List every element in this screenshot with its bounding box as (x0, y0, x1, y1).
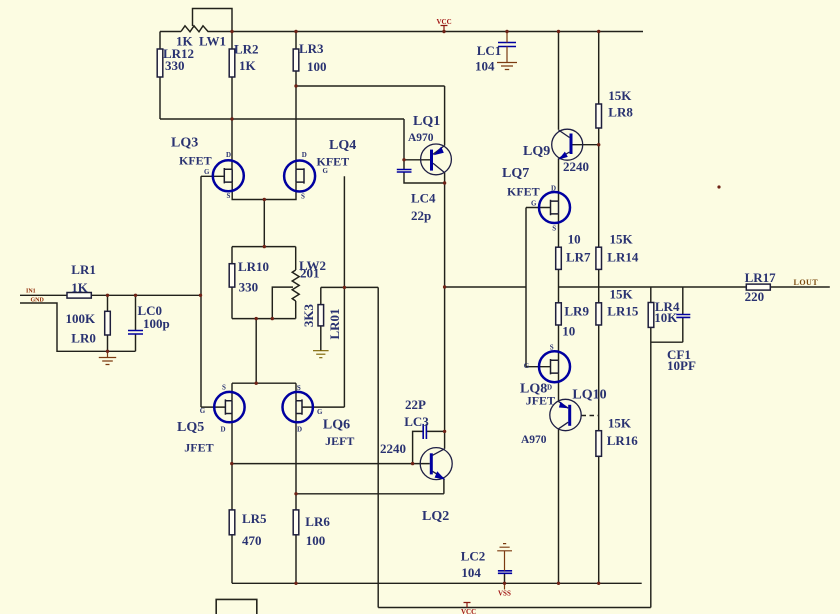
svg-text:LR2: LR2 (234, 42, 259, 57)
svg-text:LR10: LR10 (238, 259, 269, 274)
svg-text:G: G (317, 408, 323, 416)
svg-text:LQ3: LQ3 (171, 136, 198, 151)
svg-text:VCC: VCC (437, 18, 452, 26)
svg-text:LW1: LW1 (199, 34, 226, 49)
svg-text:KFET: KFET (179, 154, 212, 168)
svg-text:VSS: VSS (498, 590, 511, 598)
svg-text:LQ10: LQ10 (572, 387, 606, 402)
svg-text:LR01: LR01 (327, 308, 342, 339)
svg-text:KFET: KFET (317, 155, 350, 169)
svg-text:LC3: LC3 (404, 414, 429, 429)
svg-text:D: D (302, 151, 307, 159)
svg-text:LC2: LC2 (461, 549, 486, 564)
svg-text:LR16: LR16 (607, 433, 639, 448)
svg-text:330: 330 (165, 58, 185, 73)
svg-text:100p: 100p (143, 316, 170, 331)
svg-text:100: 100 (306, 533, 326, 548)
svg-text:330: 330 (239, 279, 259, 294)
svg-text:S: S (550, 344, 554, 352)
svg-text:10: 10 (562, 324, 575, 339)
svg-text:LQ7: LQ7 (502, 166, 529, 181)
svg-text:S: S (297, 384, 301, 392)
svg-text:LR17: LR17 (745, 270, 777, 285)
svg-text:JFET: JFET (526, 393, 555, 407)
svg-text:15K: 15K (608, 88, 632, 103)
svg-text:100K: 100K (66, 311, 97, 326)
svg-text:2240: 2240 (563, 159, 589, 174)
svg-text:15K: 15K (610, 231, 634, 246)
svg-text:D: D (297, 425, 302, 433)
svg-text:LC1: LC1 (477, 43, 502, 58)
svg-text:15K: 15K (608, 416, 632, 431)
svg-text:104: 104 (461, 565, 481, 580)
svg-text:10PF: 10PF (667, 358, 696, 373)
svg-text:VCC: VCC (461, 608, 476, 614)
svg-text:LR0: LR0 (71, 331, 96, 346)
svg-text:1K: 1K (239, 58, 257, 73)
svg-text:G: G (323, 167, 329, 175)
svg-text:D: D (547, 384, 552, 392)
svg-text:LQ1: LQ1 (413, 114, 440, 129)
svg-text:3K3: 3K3 (301, 303, 316, 327)
svg-text:220: 220 (745, 289, 765, 304)
svg-text:15K: 15K (610, 287, 634, 302)
svg-text:A970: A970 (521, 434, 547, 446)
svg-text:G: G (524, 362, 530, 370)
svg-text:470: 470 (242, 533, 262, 548)
svg-text:LQ6: LQ6 (323, 418, 350, 433)
svg-text:10: 10 (568, 231, 581, 246)
svg-text:S: S (301, 193, 305, 201)
svg-text:G: G (200, 407, 206, 415)
svg-text:D: D (226, 151, 231, 159)
svg-text:LQ2: LQ2 (422, 509, 449, 524)
svg-text:2240: 2240 (380, 441, 406, 456)
svg-text:LR3: LR3 (299, 41, 324, 56)
svg-text:LR14: LR14 (607, 250, 639, 265)
svg-text:LR1: LR1 (71, 262, 96, 277)
svg-text:201: 201 (300, 266, 320, 281)
svg-text:LR9: LR9 (564, 304, 589, 319)
svg-text:104: 104 (475, 59, 495, 74)
svg-text:22P: 22P (405, 397, 426, 412)
svg-text:D: D (551, 185, 556, 193)
svg-text:JFET: JFET (184, 440, 213, 454)
svg-text:LR15: LR15 (607, 304, 639, 319)
svg-text:LQ4: LQ4 (329, 138, 356, 153)
svg-text:LR5: LR5 (242, 511, 267, 526)
svg-text:S: S (227, 192, 231, 200)
svg-text:LQ5: LQ5 (177, 420, 204, 435)
svg-text:KFET: KFET (507, 185, 540, 199)
svg-text:LR8: LR8 (608, 105, 633, 120)
svg-text:A970: A970 (408, 132, 434, 144)
svg-text:22p: 22p (411, 208, 431, 223)
svg-text:S: S (552, 225, 556, 233)
svg-text:LC4: LC4 (411, 191, 436, 206)
svg-text:D: D (221, 425, 226, 433)
svg-text:G: G (531, 200, 537, 208)
svg-text:LR6: LR6 (305, 514, 330, 529)
svg-text:100: 100 (307, 59, 327, 74)
svg-text:1K: 1K (71, 280, 89, 295)
svg-text:LQ9: LQ9 (523, 144, 550, 159)
svg-text:JEFT: JEFT (325, 434, 354, 448)
svg-text:LOUT: LOUT (794, 278, 819, 287)
svg-text:GND: GND (31, 298, 45, 304)
svg-text:G: G (204, 168, 210, 176)
svg-text:IN1: IN1 (26, 289, 36, 295)
svg-text:S: S (222, 384, 226, 392)
svg-text:LR7: LR7 (566, 250, 591, 265)
svg-text:10K: 10K (654, 310, 678, 325)
